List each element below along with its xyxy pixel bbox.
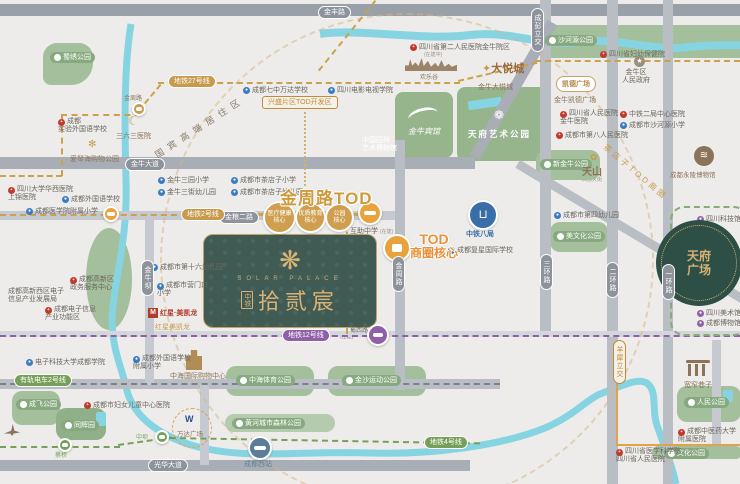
park-mei-text: 美文化公园 (566, 233, 601, 240)
poi-aegean-mall: 爱琴海购物公园 (70, 154, 119, 164)
poi-cd4-kindergarten: ●成都市第四幼儿园 (554, 210, 619, 220)
poi-joycity: 金牛大悦城 (478, 82, 513, 92)
park-tianfu-art-label: 天府艺术公园 (468, 128, 531, 140)
station-zhongba-label: 中坝 (136, 432, 148, 441)
poi-scrmjn-line2: 金牛医院 (560, 118, 618, 126)
poi-cd8-text: 成都市第八人民医院 (565, 130, 628, 140)
park-shuxiu-label: 蜀绣公园 (50, 52, 95, 63)
property-name-en: SOLAR PALACE (237, 276, 342, 282)
station-zhongba (155, 430, 169, 444)
poi-sc2-hospital: +四川省第二人民医院金牛院区 (410, 42, 510, 52)
poi-hongxing-text: 红星·美凯龙 (160, 308, 197, 318)
poi-uestc-text: 电子科技大学成都学院 (35, 357, 105, 367)
poi-shahe-primary-text: 成都市沙河源小学 (629, 120, 685, 130)
poi-cd8-hospital: +成都市第八人民医院 (556, 130, 628, 140)
poi-hongxing-sub: 红星美凯龙 (155, 322, 190, 332)
poi-cfls: ●成都外国语学校 (62, 194, 120, 204)
station-jinzhoulu-label: 金周路 (124, 93, 142, 102)
kuanzhai-gate-icon (686, 360, 710, 381)
road-badge-jinzhou: 金周路 (392, 256, 405, 292)
poi-happy-valley: 欢乐谷 (420, 72, 438, 81)
poi-fuyou-text: 成都市妇女儿童中心医院 (93, 400, 170, 410)
tianfu-square-line2: 广场 (687, 263, 711, 277)
park-wenhua-text: 文化公园 (677, 450, 705, 457)
park-jinsha-label: 金沙运动公园 (342, 375, 401, 386)
poi-cd16-kindergarten: ●成都市第十六幼儿园 (151, 262, 223, 272)
poi-scftv-text: 四川电影电视学院 (337, 85, 393, 95)
poi-sc-renmin-hospital: + 四川省医学科学院 四川省人民医院 (616, 448, 681, 464)
poi-cmc-primary: ●成都医学院附属小学 (26, 206, 98, 216)
xingsheng-tod-badge: 兴盛片区TOD开发区 (262, 96, 338, 109)
road-badge-erhuan: 二环路 (606, 262, 619, 298)
poi-jn3-kindergarten: ●金牛三街幼儿园 (158, 187, 216, 197)
poi-363-icon: ☾ (128, 114, 139, 128)
park-mei-label: 美文化公园 (553, 231, 605, 242)
poi-yongling: 成都永陵博物馆 (670, 169, 716, 179)
poi-ztej-text: 中铁二局中心医院 (629, 109, 685, 119)
poi-sc2-text: 四川省第二人民医院金牛院区 (419, 42, 510, 52)
jinzhou-tod-title: 金周路TOD (280, 184, 373, 209)
joycity-logo-text: 大悦城 (491, 63, 524, 75)
poi-art-museum-text: 四川美术馆 (706, 308, 740, 318)
tianshan-logo-icon: ✿ (590, 152, 598, 163)
road-badge-chengpeng: 成彭立交 (531, 8, 544, 52)
park-renmin-label: 人民公园 (684, 397, 729, 408)
poi-gaoxin-service-line2: 政务服务中心 (70, 284, 114, 292)
poi-uestc: ●电子科技大学成都学院 (26, 357, 105, 367)
property-flower-icon: ❋ (279, 247, 301, 273)
poi-huzhu-label: 互助中学 (350, 226, 378, 236)
hongxing-m-icon: M (148, 308, 158, 318)
poi-wanda: 万达广场 (177, 428, 203, 438)
road-badge-yihuan: 一环路 (662, 264, 675, 300)
poi-gaoxin-zone: + 成都电子信息 产业功能区 (45, 306, 96, 322)
core-park-line2: 核心 (333, 218, 345, 225)
poi-zhonghai-mall: 中海国际购物中心 (170, 371, 226, 381)
poi-garden-museum: 中国园林 艺术博物馆 (362, 137, 397, 153)
joycity-logo: ✦大悦城 (482, 60, 524, 76)
ztbj-logo-icon: ⊔ (468, 200, 498, 230)
tod-core-line1: TOD (410, 232, 458, 247)
poi-cfls-primary-line1: 成都外国语学校 (142, 355, 191, 362)
park-renmin-text: 人民公园 (697, 399, 725, 406)
yongling-logo-icon: ≋ (694, 146, 714, 166)
poi-scrm-line1: 四川省医学科学院 (625, 448, 681, 455)
poi-garden-museum-line2: 艺术博物馆 (362, 145, 397, 153)
poi-aegean-icon: ✻ (88, 139, 96, 150)
park-jinsha-text: 金沙运动公园 (355, 377, 397, 384)
poi-zyy-line2: 附属医院 (678, 436, 736, 444)
poi-shiyan-school: + 成都 实验外国语学校 (58, 118, 107, 134)
poi-huzhu-note: (在建) (380, 228, 393, 235)
poi-gaoxin-service-line1: 成都高新区 (79, 276, 114, 283)
metro-line27-seg1 (0, 175, 62, 177)
road-badge-jinfeng: 金丰路 (318, 6, 351, 19)
core-education-line2: 核心 (304, 218, 316, 225)
poi-gaoxin-bureau-line2: 信息产业发展局 (8, 296, 64, 304)
poi-363-hospital: 三六三医院 (116, 131, 151, 141)
poi-ztbj: 中铁八局 (466, 229, 494, 239)
road-badge-yangxi: 羊犀立交 (613, 340, 626, 384)
poi-ztej-hospital: +中铁二局中心医院 (620, 109, 685, 119)
location-map: 金丰路 成彭立交 金牛大道 金粮二路 金周路 金牛坝 三环路 二环路 一环路 羊… (0, 0, 740, 484)
poi-shiyan-line2: 实验外国语学校 (58, 126, 107, 134)
property-name: 拾贰宸 (258, 284, 339, 316)
poi-kuanzhai: 宽窄巷子 (684, 380, 712, 390)
poi-sc-renmin-jinniu: + 四川省人民医院 金牛医院 (560, 110, 618, 126)
poi-gov-line1: 金牛区 (622, 69, 650, 77)
station-shuxilu-line12 (367, 324, 389, 346)
poi-zyy-line1: 成都中医药大学 (687, 428, 736, 435)
gov-icon: ★ (634, 56, 645, 67)
road-badge-jinniu: 金牛大道 (125, 158, 165, 171)
tram-line2-badge: 有轨电车2号线 (14, 374, 72, 387)
poi-yingmenkou-primary: ● 成都市营门口 小学 (157, 282, 208, 298)
park-zhonghai-text: 中海体育公园 (249, 377, 291, 384)
poi-shahe-primary: ●成都市沙河源小学 (620, 120, 685, 130)
road-label-shuxi: 蜀西路 (350, 325, 368, 334)
park-shaheyuan-text: 沙河源公园 (558, 37, 593, 44)
poi-huaxi-line1: 四川大学华西医院 (17, 186, 73, 193)
park-chengfei-label: 成飞公园 (16, 399, 61, 410)
poi-gaoxin-zone-line2: 产业功能区 (45, 314, 96, 322)
poi-scfy-hospital: +四川省妇幼保健院 (600, 49, 665, 59)
park-tianfu-art-icon: ❁ (494, 108, 504, 122)
park-huanghe-label: 黄河城市森林公园 (232, 418, 305, 429)
poi-cfls-primary: ● 成都外国语学校 附属小学 (133, 355, 191, 371)
road-badge-sanhuan: 三环路 (540, 254, 553, 290)
poi-gaoxin-bureau-line1: 成都高新西区电子 (8, 288, 64, 296)
road-badge-jinliang2: 金粮二路 (219, 211, 259, 224)
poi-scrm-line2: 四川省人民医院 (616, 456, 681, 464)
station-caiqiao-label: 蔡桥 (55, 450, 67, 459)
capitaland-logo: 凯德广场 (556, 76, 596, 92)
park-zhonghai-label: 中海体育公园 (236, 375, 295, 386)
poi-zyy-hospital: + 成都中医药大学 附属医院 (678, 428, 736, 444)
poi-qizhong-wanda: ●成都七中万达学校 (243, 85, 308, 95)
jinniu-hotel-label: 金牛宾馆 (408, 126, 440, 137)
park-tonghui-text: 同辉园 (74, 422, 95, 429)
poi-gov-line2: 人民政府 (622, 77, 650, 85)
poi-ymk-line1: 成都市营门口 (166, 282, 208, 289)
core-park-line1: 公园 (333, 211, 345, 218)
cbd-zone-bottom (616, 444, 740, 446)
metro-line27-badge: 地铁27号线 (168, 75, 216, 88)
poi-capitaland: 金牛凯德广场 (554, 95, 596, 105)
poi-gaoxin-service: + 成都高新区 政务服务中心 (70, 276, 114, 292)
core-medical-line2: 核心 (273, 218, 285, 225)
poi-cd-museum: ●成都博物馆 (697, 318, 740, 328)
poi-gaoxin-zone-line1: 成都电子信息 (54, 306, 96, 313)
poi-ymk-line2: 小学 (157, 290, 208, 298)
poi-huzhu-school: 互助中学 (在建) (350, 226, 393, 236)
poi-jn3-primary-text: 金牛三园小学 (167, 175, 209, 185)
poi-scrmjn-line1: 四川省人民医院 (569, 110, 618, 117)
poi-cmc-primary-text: 成都医学院附属小学 (35, 206, 98, 216)
poi-qz-wanda-text: 成都七中万达学校 (252, 85, 308, 95)
tianshan-logo: 天山 (582, 163, 602, 178)
road-badge-jinniuba: 金牛坝 (141, 260, 154, 296)
station-chengdu-west (248, 436, 272, 460)
metro-line4-badge: 地铁4号线 (424, 436, 468, 449)
poi-cd4-kg-text: 成都市第四幼儿园 (563, 210, 619, 220)
park-shuxiu-text: 蜀绣公园 (63, 54, 91, 61)
core-medical-line1: 医疗健康 (267, 211, 291, 218)
poi-scftv: ●四川电影电视学院 (328, 85, 393, 95)
property-brand: 中铁 (241, 291, 253, 309)
park-chengfei-text: 成飞公园 (29, 401, 57, 408)
poi-cfls-primary-line2: 附属小学 (133, 363, 191, 371)
xingsheng-connector (304, 112, 306, 186)
wanda-logo-icon: W (185, 414, 194, 424)
park-huanghe-text: 黄河城市森林公园 (245, 420, 301, 427)
park-shaheyuan-label: 沙河源公园 (545, 35, 597, 46)
park-tonghui-label: 同辉园 (61, 420, 99, 431)
road-badge-guanghua: 光华大道 (148, 459, 188, 472)
poi-jinniu-gov: 金牛区 人民政府 (622, 69, 650, 85)
poi-cd16-text: 成都市第十六幼儿园 (160, 262, 223, 272)
poi-gaoxin-bureau: 成都高新西区电子 信息产业发展局 (8, 288, 64, 304)
core-education-line1: 优质教育 (298, 211, 322, 218)
tianfu-square-line1: 天府 (687, 249, 711, 263)
poi-jn3-primary: ●金牛三园小学 (158, 175, 209, 185)
metro-line12-badge: 地铁12号线 (282, 329, 330, 342)
tod-core-title: TOD 商圈核心 (410, 232, 458, 259)
metro-line2-badge: 地铁2号线 (181, 208, 225, 221)
poi-art-museum: ●四川美术馆 (697, 308, 740, 318)
tod-core-line2: 商圈核心 (410, 247, 458, 260)
poi-jn3-kg-text: 金牛三街幼儿园 (167, 187, 216, 197)
poi-fuyou-hospital: +成都市妇女儿童中心医院 (84, 400, 170, 410)
poi-cd-museum-text: 成都博物馆 (706, 318, 740, 328)
poi-shiyan-line1: 成都 (67, 118, 81, 125)
poi-hongxing-logo: M 红星·美凯龙 (148, 308, 197, 318)
poi-cfls-text: 成都外国语学校 (71, 194, 120, 204)
station-line2-west (103, 206, 119, 222)
poi-fuxing-text: 成都复星国际学校 (457, 245, 513, 255)
property-block: ❋ SOLAR PALACE 中铁 拾贰宸 (203, 234, 377, 328)
station-chengdu-west-label: 成都西站 (244, 459, 272, 469)
poi-garden-museum-line1: 中国园林 (362, 137, 397, 145)
